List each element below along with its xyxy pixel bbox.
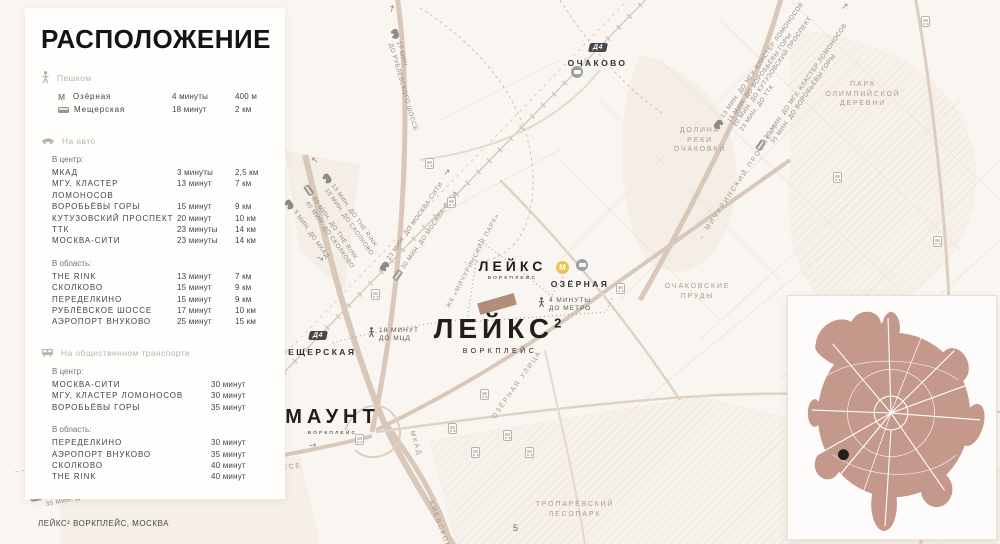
bus-stop-icon — [371, 289, 380, 300]
arrow-up-right-icon: ↗ — [841, 2, 849, 12]
travel-row: МГУ, КЛАСТЕР ЛОМОНОСОВ30 минут — [52, 390, 269, 401]
travel-row: СКОЛКОВО15 минут9 км — [52, 282, 269, 293]
destination: ВОРОБЬЁВЫ ГОРЫ — [52, 201, 177, 212]
destination: THE RINK — [52, 271, 177, 282]
rail-station-icon — [576, 259, 588, 271]
car-icon — [41, 137, 55, 145]
travel-distance: 400 м — [235, 91, 269, 104]
walk-note-mcd: 18 МИНУТДО МЦД — [368, 327, 419, 343]
travel-row: ТТК23 минуты14 км — [52, 224, 269, 235]
location-dot — [838, 449, 849, 460]
page-title: РАСПОЛОЖЕНИЕ — [41, 24, 269, 55]
d4-line-badge: Д4 — [588, 43, 608, 52]
travel-distance: 14 км — [235, 224, 269, 235]
destination: МОСКВА-СИТИ — [52, 235, 177, 246]
travel-distance: 7 км — [235, 178, 269, 189]
travel-time: 35 минут — [211, 449, 269, 460]
travel-time: 18 минут — [172, 104, 230, 117]
travel-distance: 2 км — [235, 104, 269, 117]
destination: СКОЛКОВО — [52, 460, 211, 471]
destination: ТТК — [52, 224, 177, 235]
section-header-transit: На общественном транспорте — [41, 348, 269, 358]
travel-distance: 10 км — [235, 305, 269, 316]
group-heading: В область: — [41, 425, 269, 434]
travel-row: РУБЛЁВСКОЕ ШОССЕ17 минут10 км — [52, 305, 269, 316]
car-region-rows: THE RINK13 минут7 км СКОЛКОВО15 минут9 к… — [41, 271, 269, 328]
walk-icon — [41, 71, 50, 84]
transit-center-rows: МОСКВА-СИТИ30 минут МГУ, КЛАСТЕР ЛОМОНОС… — [41, 379, 269, 413]
metro-m-icon: М — [58, 91, 68, 104]
bus-stop-icon — [921, 16, 930, 27]
travel-time: 30 минут — [211, 390, 269, 401]
rail-station-icon — [571, 66, 583, 78]
travel-row: THE RINK13 минут7 км — [52, 271, 269, 282]
arrow-up-left-icon: ↖ — [311, 156, 319, 166]
station-ochakovo: Д4 ОЧАКОВО — [550, 36, 645, 68]
walking-person-icon — [538, 297, 545, 308]
section-label: На авто — [62, 136, 96, 146]
travel-distance: 9 км — [235, 294, 269, 305]
destination: АЭРОПОРТ ВНУКОВО — [52, 449, 211, 460]
travel-time: 17 минут — [177, 305, 235, 316]
walk-rows: М Озёрная 4 минуты 400 м Мещерская 18 ми… — [41, 91, 269, 116]
location-panel: РАСПОЛОЖЕНИЕ Пешком М Озёрная 4 минуты 4… — [25, 8, 285, 499]
travel-row: МГУ, КЛАСТЕР ЛОМОНОСОВ13 минут7 км — [52, 178, 269, 201]
destination: МГУ, КЛАСТЕР ЛОМОНОСОВ — [52, 178, 177, 201]
travel-row: ВОРОБЬЁВЫ ГОРЫ15 минут9 км — [52, 201, 269, 212]
d4-line-badge: Д4 — [308, 331, 328, 340]
project-label-leiks2: ЛЕЙКС2 ВОРКПЛЕЙС — [420, 313, 580, 355]
destination: МОСКВА-СИТИ — [52, 379, 211, 390]
group-heading: В область: — [41, 259, 269, 268]
travel-time: 13 минут — [177, 178, 235, 189]
bus-stop-icon — [616, 283, 625, 294]
travel-distance: 10 км — [235, 213, 269, 224]
tram-icon — [41, 348, 54, 357]
travel-time: 15 минут — [177, 282, 235, 293]
mcd-train-icon — [58, 107, 69, 113]
bus-stop-icon — [471, 447, 480, 458]
bus-stop-icon — [933, 236, 942, 247]
travel-time: 4 минуты — [172, 91, 230, 104]
brochure-page: ДОЛИНАРЕКИОЧАКОВКИ ПАРКОЛИМПИЙСКОЙДЕРЕВН… — [0, 0, 1000, 544]
travel-distance: 9 км — [235, 282, 269, 293]
travel-distance: 2,5 км — [235, 167, 269, 178]
travel-row: THE RINK40 минут — [52, 471, 269, 482]
destination: THE RINK — [52, 471, 211, 482]
section-label: Пешком — [57, 73, 91, 83]
project-label-maunt: МАУНТ ВОРКПЛЕЙС — [275, 406, 390, 436]
section-header-car: На авто — [41, 136, 269, 146]
travel-time: 35 минут — [211, 402, 269, 413]
bus-stop-icon — [503, 430, 512, 441]
moscow-silhouette — [788, 296, 996, 539]
travel-time: 30 минут — [211, 437, 269, 448]
travel-distance: 14 км — [235, 235, 269, 246]
travel-time: 3 минуты — [177, 167, 235, 178]
travel-row: КУТУЗОВСКИЙ ПРОСПЕКТ20 минут10 км — [52, 213, 269, 224]
bus-stop-icon — [355, 434, 364, 445]
metro-icon: М — [556, 261, 569, 274]
destination: Озёрная — [73, 91, 167, 104]
travel-time: 20 минут — [177, 213, 235, 224]
area-label-park-olymp: ПАРКОЛИМПИЙСКОЙДЕРЕВНИ — [818, 80, 908, 109]
destination: СКОЛКОВО — [52, 282, 177, 293]
section-label: На общественном транспорте — [61, 348, 190, 358]
travel-row: МКАД3 минуты2,5 км — [52, 167, 269, 178]
page-number: 5 — [513, 523, 518, 533]
travel-distance: 15 км — [235, 316, 269, 327]
destination: Мещерская — [74, 104, 167, 117]
destination: МКАД — [52, 167, 177, 178]
travel-row: Мещерская 18 минут 2 км — [52, 104, 269, 117]
destination: АЭРОПОРТ ВНУКОВО — [52, 316, 177, 327]
travel-row: АЭРОПОРТ ВНУКОВО25 минут15 км — [52, 316, 269, 327]
travel-row: ПЕРЕДЕЛКИНО15 минут9 км — [52, 294, 269, 305]
travel-row: СКОЛКОВО40 минут — [52, 460, 269, 471]
travel-time: 15 минут — [177, 201, 235, 212]
destination: ПЕРЕДЕЛКИНО — [52, 294, 177, 305]
bus-stop-icon — [480, 389, 489, 400]
bus-stop-icon — [525, 447, 534, 458]
transit-region-rows: ПЕРЕДЕЛКИНО30 минут АЭРОПОРТ ВНУКОВО35 м… — [41, 437, 269, 483]
travel-distance: 9 км — [235, 201, 269, 212]
superscript-2: 2 — [554, 316, 566, 331]
travel-time: 40 минут — [211, 460, 269, 471]
destination: КУТУЗОВСКИЙ ПРОСПЕКТ — [52, 213, 177, 224]
travel-row: ПЕРЕДЕЛКИНО30 минут — [52, 437, 269, 448]
bus-stop-icon — [448, 423, 457, 434]
arrow-right-icon: → — [308, 441, 317, 452]
group-heading: В центр: — [41, 155, 269, 164]
group-heading: В центр: — [41, 367, 269, 376]
destination: ВОРОБЬЁВЫ ГОРЫ — [52, 402, 211, 413]
travel-time: 40 минут — [211, 471, 269, 482]
moscow-inset-map — [787, 295, 997, 540]
footer-caption: ЛЕЙКС² ВОРКПЛЕЙС, МОСКВА — [38, 519, 169, 528]
project-label-leiks: ЛЕЙКС ВОРКПЛЕЙС — [470, 258, 555, 281]
travel-time: 25 минут — [177, 316, 235, 327]
travel-time: 13 минут — [177, 271, 235, 282]
arrow-up-right-icon: ↗ — [443, 168, 451, 178]
travel-row: М Озёрная 4 минуты 400 м — [52, 91, 269, 104]
destination: РУБЛЁВСКОЕ ШОССЕ — [52, 305, 177, 316]
travel-row: МОСКВА-СИТИ23 минуты14 км — [52, 235, 269, 246]
travel-row: МОСКВА-СИТИ30 минут — [52, 379, 269, 390]
travel-time: 15 минут — [177, 294, 235, 305]
travel-row: ВОРОБЬЁВЫ ГОРЫ35 минут — [52, 402, 269, 413]
destination: МГУ, КЛАСТЕР ЛОМОНОСОВ — [52, 390, 211, 401]
bus-stop-icon — [425, 158, 434, 169]
bus-stop-icon — [833, 172, 842, 183]
travel-row: АЭРОПОРТ ВНУКОВО35 минут — [52, 449, 269, 460]
area-label-troparevsky: ТРОПАРЁВСКИЙЛЕСОПАРК — [525, 500, 625, 519]
car-icon — [392, 28, 400, 39]
area-label-prudy: ОЧАКОВСКИЕПРУДЫ — [650, 282, 745, 301]
travel-time: 23 минуты — [177, 235, 235, 246]
walk-note-metro: 4 МИНУТЫДО МЕТРО — [538, 297, 591, 313]
destination: ПЕРЕДЕЛКИНО — [52, 437, 211, 448]
section-header-walk: Пешком — [41, 71, 269, 84]
travel-time: 30 минут — [211, 379, 269, 390]
travel-distance: 7 км — [235, 271, 269, 282]
walking-person-icon — [368, 327, 375, 338]
travel-time: 23 минуты — [177, 224, 235, 235]
car-center-rows: МКАД3 минуты2,5 км МГУ, КЛАСТЕР ЛОМОНОСО… — [41, 167, 269, 247]
bus-stop-icon — [447, 197, 456, 208]
